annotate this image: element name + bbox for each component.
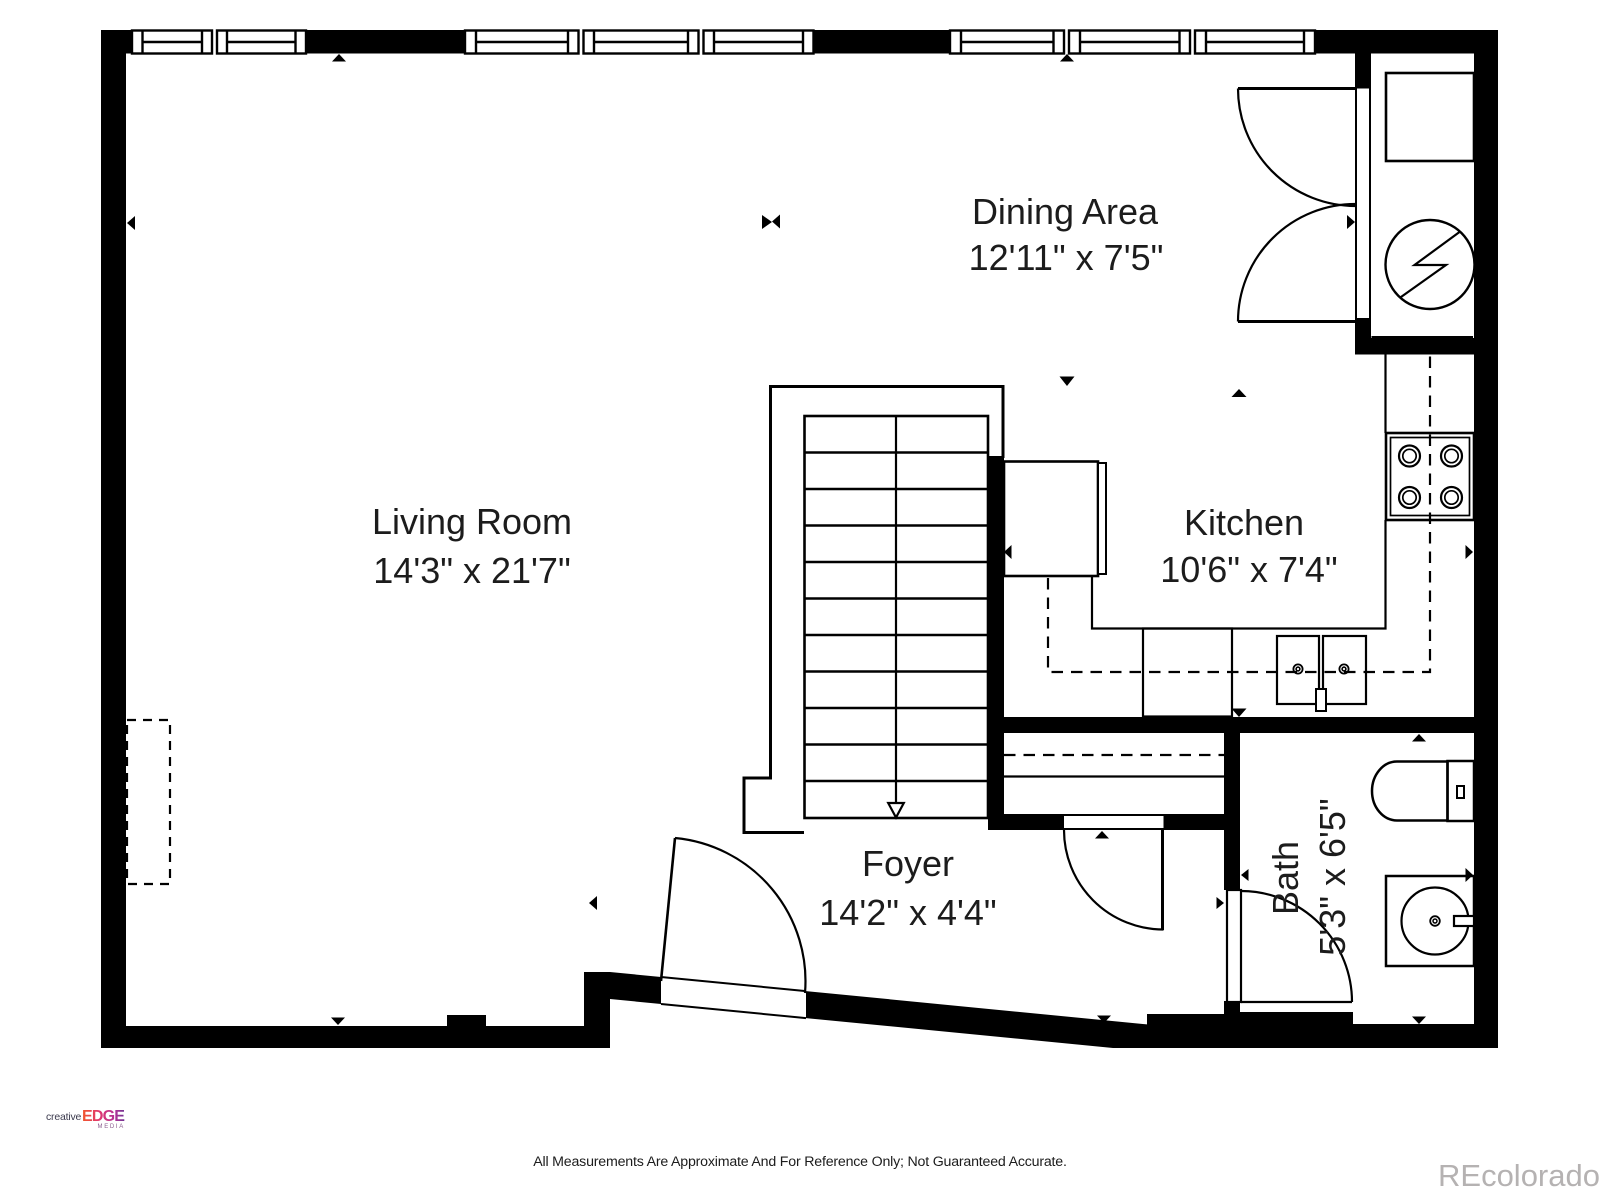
svg-text:12'11" x 7'5": 12'11" x 7'5": [969, 237, 1164, 278]
svg-text:MEDIA: MEDIA: [98, 1124, 126, 1130]
svg-text:All Measurements Are Approxima: All Measurements Are Approximate And For…: [533, 1154, 1066, 1170]
svg-text:REcolorado: REcolorado: [1438, 1158, 1600, 1193]
svg-text:5'3" x 6'5": 5'3" x 6'5": [1312, 798, 1353, 955]
svg-text:Kitchen: Kitchen: [1184, 502, 1304, 543]
svg-text:Foyer: Foyer: [862, 843, 954, 884]
svg-text:Living Room: Living Room: [372, 501, 572, 542]
svg-text:Bath: Bath: [1265, 841, 1306, 915]
svg-text:10'6" x 7'4": 10'6" x 7'4": [1160, 549, 1337, 590]
svg-text:14'2" x 4'4": 14'2" x 4'4": [819, 892, 996, 933]
svg-text:EDGE: EDGE: [82, 1108, 125, 1125]
svg-text:14'3" x 21'7": 14'3" x 21'7": [373, 550, 570, 591]
svg-text:Dining Area: Dining Area: [972, 191, 1159, 232]
svg-text:creative: creative: [46, 1111, 82, 1123]
